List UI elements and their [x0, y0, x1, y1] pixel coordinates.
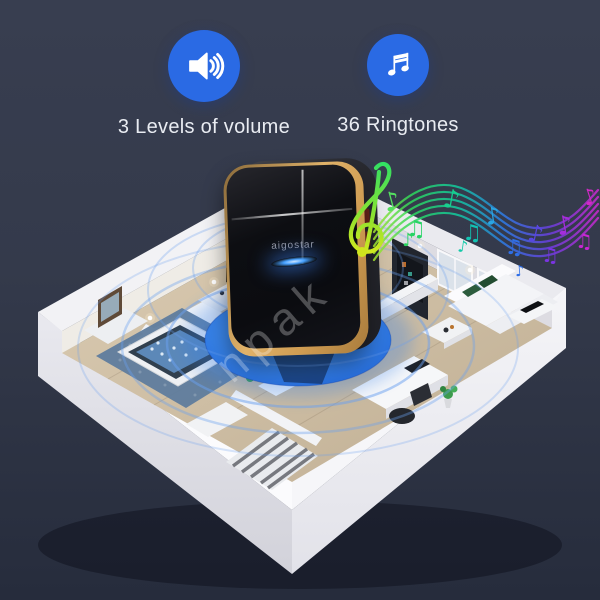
svg-text:♫: ♫	[505, 235, 524, 259]
svg-text:♫: ♫	[541, 243, 559, 267]
music-note-icon	[367, 34, 429, 96]
device-brand-logo: aigostar	[228, 238, 357, 253]
feature-ringtones-label: 36 Ringtones	[300, 114, 496, 137]
feature-ringtones: 36 Ringtones	[300, 34, 496, 137]
svg-text:♪: ♪	[554, 210, 576, 242]
music-staff	[374, 185, 598, 260]
svg-text:♪: ♪	[456, 236, 469, 256]
office	[352, 356, 458, 424]
music-notes: ♪ ♫ ♪ ♫ ♪ ♫ ♪ ♫ ♪ ♫ ♪ ♪ ♪ ♪	[380, 184, 600, 281]
svg-text:♫: ♫	[406, 217, 426, 242]
striped-bed	[233, 432, 314, 488]
product-marketing-image: aigostar	[0, 0, 600, 600]
ground-shadow	[38, 501, 562, 589]
svg-text:♪: ♪	[483, 201, 502, 231]
living-room	[392, 238, 558, 349]
bedroom	[186, 390, 322, 490]
feature-volume: 3 Levels of volume	[98, 30, 310, 139]
svg-text:♪: ♪	[579, 184, 600, 212]
svg-text:♫: ♫	[575, 229, 593, 253]
svg-text:♪: ♪	[402, 230, 414, 251]
svg-text:♪: ♪	[380, 186, 404, 219]
svg-text:♪: ♪	[525, 219, 546, 250]
feature-volume-label: 3 Levels of volume	[98, 116, 310, 139]
svg-text:♪: ♪	[514, 262, 525, 281]
speaker-volume-icon	[168, 30, 240, 102]
device-seam-horizontal	[231, 208, 352, 221]
svg-text:♪: ♪	[441, 184, 463, 216]
svg-text:♫: ♫	[462, 221, 482, 246]
